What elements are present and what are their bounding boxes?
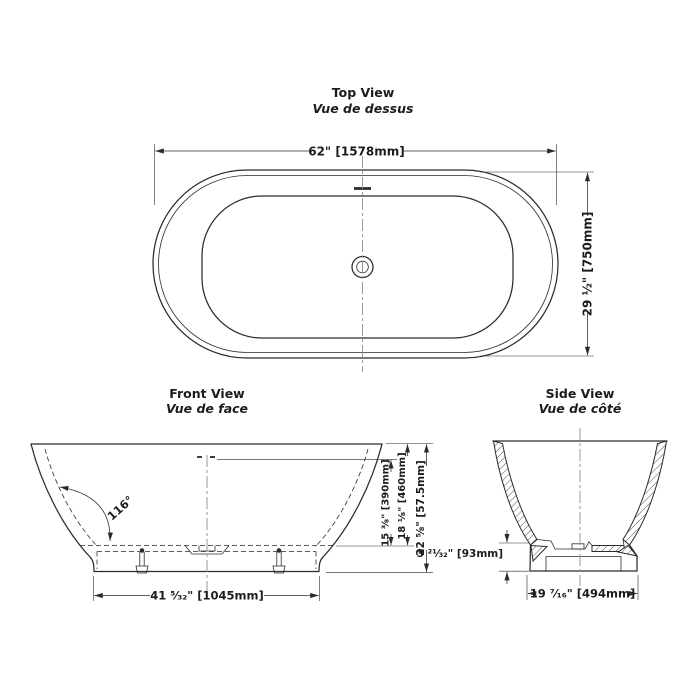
side-view-subtitle: Vue de côté xyxy=(539,401,622,416)
dim-rim-height-label: 18 ⅛" [460mm] xyxy=(397,452,408,539)
front-view-dimensions: 116° 15 ⅜" [390mm] 18 ⅛" [460mm] 22 ⅝" [… xyxy=(60,444,433,603)
dim-top-depth-label: 29 ½" [750mm] xyxy=(581,212,595,317)
dim-overflow-height-label: 15 ⅜" [390mm] xyxy=(381,459,392,546)
drawing-sheet: Top View Vue de dessus 62" [1578mm] 29 ½… xyxy=(0,0,700,700)
top-view: Top View Vue de dessus 62" [1578mm] 29 ½… xyxy=(153,85,595,372)
dim-base-length-label: 41 ⁵⁄₃₂" [1045mm] xyxy=(150,589,264,603)
dim-side-base-width-label: 19 ⁷⁄₁₆" [494mm] xyxy=(530,587,636,601)
dim-top-width-label: 62" [1578mm] xyxy=(308,145,405,159)
side-floor-hatch xyxy=(592,546,624,552)
front-view-title: Front View xyxy=(169,386,245,401)
leveling-foot-left xyxy=(136,548,148,573)
front-outline xyxy=(31,444,382,572)
front-view: Front View Vue de face xyxy=(31,386,433,603)
side-view-title: Side View xyxy=(546,386,615,401)
tub-rim-inner-edge xyxy=(159,176,553,353)
dim-overall-height-label: 22 ⅝" [57.5mm] xyxy=(415,460,427,556)
side-drain xyxy=(572,544,584,549)
side-wall-section-right xyxy=(623,441,667,545)
front-view-subtitle: Vue de face xyxy=(166,401,248,416)
tub-basin xyxy=(202,196,513,338)
side-view-drawing xyxy=(493,428,667,586)
dim-wall-angle-label: 116° xyxy=(105,493,136,523)
front-view-drawing xyxy=(31,444,382,592)
top-view-subtitle: Vue de dessus xyxy=(313,101,414,116)
leveling-foot-right xyxy=(273,548,285,573)
side-base-corner-left xyxy=(531,546,547,562)
side-wall-section-left xyxy=(494,441,538,545)
dim-side-base-height-label: 3 ²¹⁄₃₂" [93mm] xyxy=(417,548,503,560)
tub-outer-rim xyxy=(153,170,558,358)
side-view: Side View Vue de côté xyxy=(417,386,667,601)
technical-drawing-svg: Top View Vue de dessus 62" [1578mm] 29 ½… xyxy=(0,0,700,700)
top-view-title: Top View xyxy=(332,85,395,100)
top-view-drawing xyxy=(153,156,558,372)
